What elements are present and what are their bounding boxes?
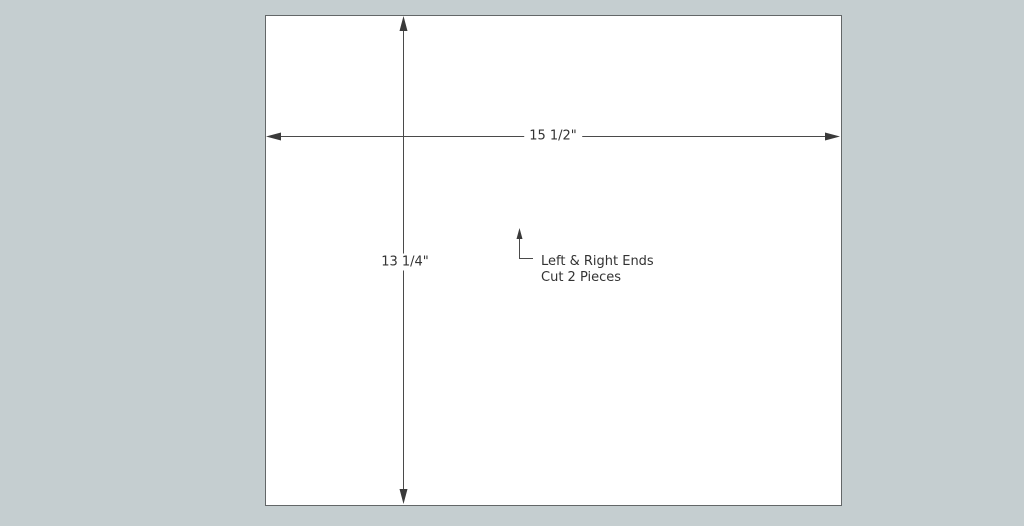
drawing-canvas: 15 1/2" 13 1/4" Left & Right Ends Cut 2 … <box>0 0 1024 526</box>
height-dimension-label: 13 1/4" <box>376 254 434 271</box>
callout-line1: Left & Right Ends <box>541 254 654 270</box>
callout-annotation: Left & Right Ends Cut 2 Pieces <box>541 254 654 286</box>
callout-line2: Cut 2 Pieces <box>541 270 654 286</box>
width-dimension-label: 15 1/2" <box>524 128 582 145</box>
